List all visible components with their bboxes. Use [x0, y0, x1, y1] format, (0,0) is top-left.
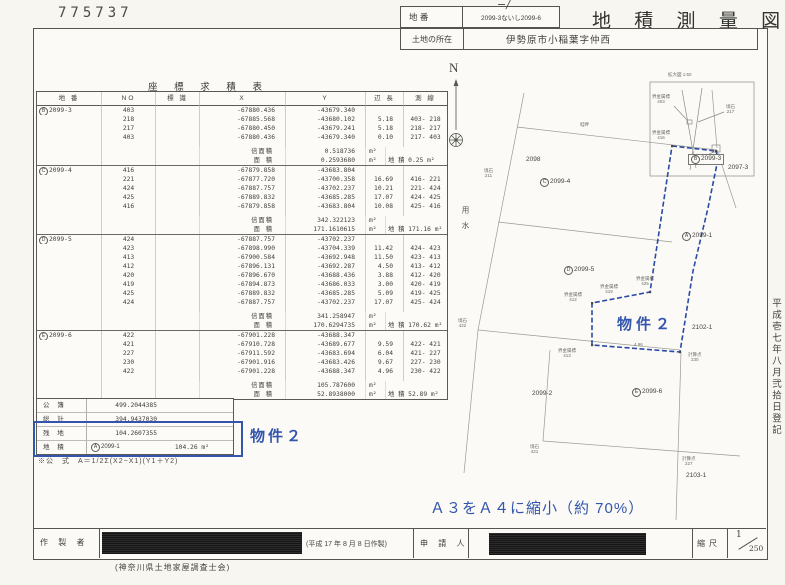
- summary-parcel: [181, 413, 233, 426]
- unit-label: m²: [365, 390, 385, 399]
- point-no-cell: 424: [101, 235, 155, 244]
- registered-area-cell: 地 積 170.62 m²: [385, 321, 447, 330]
- table-row: 230-67901.916-43683.4269.67227- 230: [37, 358, 447, 367]
- parcel-cell: [37, 271, 101, 280]
- area-value: 171.1610615: [285, 225, 365, 234]
- side-length-cell: [365, 235, 403, 244]
- double-area-row: 倍面積341.258947m²: [37, 312, 447, 321]
- survey-point-label-413: 界金属標413: [558, 348, 576, 358]
- x-coordinate-cell: -67889.832: [199, 289, 285, 298]
- registered-area-cell: 地 積 52.89 m²: [385, 390, 447, 399]
- parcel-label-2102-1: 2102-1: [692, 324, 712, 331]
- x-coordinate-cell: -67901.916: [199, 358, 285, 367]
- double-area-row: 倍面積0.518736m²: [37, 147, 447, 156]
- parcel-cell: [37, 358, 101, 367]
- marker-cell: [155, 331, 199, 340]
- survey-point-label-419: 界金属標419: [600, 284, 618, 294]
- y-coordinate-cell: -43692.287: [285, 262, 365, 271]
- area-value: 0.2593680: [285, 156, 365, 165]
- north-label: N: [449, 60, 458, 76]
- column-header: NO: [101, 92, 155, 106]
- x-coordinate-cell: -67879.858: [199, 202, 285, 211]
- x-coordinate-cell: -67896.131: [199, 262, 285, 271]
- side-length-cell: 5.09: [365, 289, 403, 298]
- y-coordinate-cell: -43685.285: [285, 289, 365, 298]
- applicant-label: 申 請 人: [420, 538, 468, 549]
- x-coordinate-cell: -67894.873: [199, 280, 285, 289]
- marker-cell: [155, 262, 199, 271]
- footer-divider: [33, 528, 766, 529]
- point-no-cell: 217: [101, 124, 155, 133]
- circled-letter: D: [564, 266, 573, 275]
- marker-cell: [155, 367, 199, 376]
- side-length-cell: 4.96: [365, 367, 403, 376]
- table-row: 424-67887.757-43702.23717.07425- 424: [37, 298, 447, 307]
- parcel-cell: B2099-3: [37, 106, 101, 115]
- side-length-cell: [365, 331, 403, 340]
- table-row: 217-67880.450-43679.2415.18218- 217: [37, 124, 447, 133]
- column-header: 辺 長: [365, 92, 403, 106]
- double-area-row: 倍面積105.787600m²: [37, 381, 447, 390]
- parcel-label-2103-1: 2103-1: [686, 472, 706, 479]
- point-no-cell: 416: [101, 166, 155, 175]
- blank-cell: [37, 156, 199, 165]
- summary-row: 総 計394.9437030: [37, 412, 233, 426]
- point-no-cell: 424: [101, 184, 155, 193]
- table-row: 423-67898.990-43704.33911.42424- 423: [37, 244, 447, 253]
- table-row: 227-67911.592-43683.6946.04421- 227: [37, 349, 447, 358]
- summary-value: 104.26 m²: [139, 441, 233, 454]
- document-number-stamp: 775737: [58, 5, 133, 21]
- blank-cell: [385, 381, 447, 390]
- circled-letter: B: [691, 155, 700, 164]
- table-header-row: 地 番NO標 識XY辺 長測 線: [37, 92, 447, 106]
- area-label: 面 積: [199, 321, 285, 330]
- marker-cell: [155, 235, 199, 244]
- table-row: B2099-3403-67880.436-43679.340: [37, 106, 447, 115]
- side-length-cell: 3.00: [365, 280, 403, 289]
- side-length-cell: 4.50: [365, 262, 403, 271]
- x-coordinate-cell: -67885.568: [199, 115, 285, 124]
- y-coordinate-cell: -43700.358: [285, 175, 365, 184]
- point-no-cell: 416: [101, 202, 155, 211]
- y-coordinate-cell: -43683.426: [285, 358, 365, 367]
- survey-point-label: 畦畔: [580, 122, 589, 127]
- survey-point-label-422: 境石422: [458, 318, 467, 328]
- registration-handwritten-note: 平成壱七年八月弐拾日登記: [768, 298, 782, 473]
- area-value: 52.8938000: [285, 390, 365, 399]
- point-no-cell: 423: [101, 244, 155, 253]
- y-coordinate-cell: -43688.347: [285, 331, 365, 340]
- table-row: 218-67885.568-43680.1025.18403- 218: [37, 115, 447, 124]
- summary-value: 104.2607355: [87, 427, 181, 440]
- blank-cell: [37, 216, 199, 225]
- parcel-cell: [37, 349, 101, 358]
- parcel-cell: [37, 193, 101, 202]
- land-location-row: 土地の所在 伊勢原市小稲葉字仲西: [400, 28, 758, 50]
- table-row: C2099-4416-67879.858-43683.804: [37, 165, 447, 175]
- footer-divider: [727, 528, 728, 558]
- survey-point-label-412: 界金属標412: [564, 292, 582, 302]
- point-no-cell: 422: [101, 331, 155, 340]
- table-row: 424-67887.757-43702.23710.21221- 424: [37, 184, 447, 193]
- unit-label: m²: [365, 312, 385, 321]
- blank-cell: [37, 321, 199, 330]
- point-no-cell: 421: [101, 340, 155, 349]
- x-coordinate-cell: -67880.450: [199, 124, 285, 133]
- y-coordinate-cell: -43679.340: [285, 133, 365, 142]
- circled-letter: B: [39, 107, 48, 115]
- point-no-cell: 413: [101, 253, 155, 262]
- marker-cell: [155, 193, 199, 202]
- blank-cell: [37, 312, 199, 321]
- unit-label: m²: [365, 147, 385, 156]
- y-coordinate-cell: -43683.804: [285, 166, 365, 175]
- waterway-label: 用水: [460, 206, 471, 237]
- point-no-cell: 422: [101, 367, 155, 376]
- side-length-cell: 5.18: [365, 115, 403, 124]
- parcel-label-2099-3: B2099-3: [688, 154, 724, 165]
- point-no-cell: 227: [101, 349, 155, 358]
- blank-cell: [385, 312, 447, 321]
- side-length-cell: 10.21: [365, 184, 403, 193]
- footer-divider: [468, 528, 469, 558]
- parcel-label-2098: 2098: [526, 156, 540, 163]
- y-coordinate-cell: -43686.033: [285, 280, 365, 289]
- area-value: 170.6294735: [285, 321, 365, 330]
- footer-divider: [99, 528, 100, 558]
- y-coordinate-cell: -43683.804: [285, 202, 365, 211]
- parcel-cell: [37, 202, 101, 211]
- property2-map-annotation: 物件２: [617, 313, 674, 334]
- area-label: 面 積: [199, 225, 285, 234]
- y-coordinate-cell: -43683.694: [285, 349, 365, 358]
- double-area-label: 倍面積: [199, 147, 285, 156]
- summary-parcel: [181, 427, 233, 440]
- blank-cell: [37, 147, 199, 156]
- creator-redaction-bar: [102, 532, 302, 554]
- marker-cell: [155, 349, 199, 358]
- column-header: Y: [285, 92, 365, 106]
- side-length-cell: 16.69: [365, 175, 403, 184]
- parcel-cell: [37, 253, 101, 262]
- table-row: 403-67880.436-43679.3400.10217- 403: [37, 133, 447, 142]
- x-coordinate-cell: -67901.228: [199, 331, 285, 340]
- survey-point-label: 4.96: [634, 342, 643, 347]
- parcel-cell: [37, 133, 101, 142]
- scale-fraction: 1 250: [730, 528, 767, 558]
- side-length-cell: 3.88: [365, 271, 403, 280]
- footer-divider: [692, 528, 693, 558]
- summary-label: 残 地: [37, 427, 87, 440]
- table-row: 422-67901.228-43688.3474.96230- 422: [37, 367, 447, 376]
- column-header: 標 識: [155, 92, 199, 106]
- unit-label: m²: [365, 321, 385, 330]
- parcel-cell: C2099-4: [37, 166, 101, 175]
- parcel-cell: [37, 115, 101, 124]
- column-header: X: [199, 92, 285, 106]
- north-arrow-icon: [450, 79, 463, 147]
- x-coordinate-cell: -67896.670: [199, 271, 285, 280]
- side-length-cell: 6.04: [365, 349, 403, 358]
- side-length-cell: 9.59: [365, 340, 403, 349]
- reduction-note: Ａ３をＡ４に縮小（約 70%）: [430, 497, 644, 518]
- survey-map: N 用水 2098C2099-4B2099-32097-3D2099-5A209…: [440, 58, 772, 528]
- unit-label: m²: [365, 381, 385, 390]
- double-area-value: 0.518736: [285, 147, 365, 156]
- parcel-cell: E2099-6: [37, 331, 101, 340]
- applicant-redaction-bar: [489, 533, 646, 555]
- y-coordinate-cell: -43688.347: [285, 367, 365, 376]
- y-coordinate-cell: -43704.339: [285, 244, 365, 253]
- x-coordinate-cell: -67880.436: [199, 133, 285, 142]
- parcel-cell: [37, 298, 101, 307]
- y-coordinate-cell: -43680.102: [285, 115, 365, 124]
- parcel-cell: [37, 289, 101, 298]
- marker-cell: [155, 271, 199, 280]
- side-length-cell: 5.18: [365, 124, 403, 133]
- table-row: 425-67889.832-43685.2855.09419- 425: [37, 289, 447, 298]
- table-row: 412-67896.131-43692.2874.50413- 412: [37, 262, 447, 271]
- y-coordinate-cell: -43688.436: [285, 271, 365, 280]
- summary-chiseki-row: 地 積A2099-1104.26 m²: [37, 440, 233, 454]
- area-row: 面 積170.6294735m²地 積 170.62 m²: [37, 321, 447, 330]
- y-coordinate-cell: -43702.237: [285, 298, 365, 307]
- point-no-cell: 425: [101, 289, 155, 298]
- survey-point-label-425: 界金属標425: [636, 276, 654, 286]
- scale-label: 縮尺: [697, 538, 721, 549]
- point-no-cell: 230: [101, 358, 155, 367]
- parcel-label-2099-2: 2099-2: [532, 390, 552, 397]
- land-location-label: 土地の所在: [401, 29, 464, 49]
- x-coordinate-cell: -67910.728: [199, 340, 285, 349]
- summary-value: 499.2044385: [87, 399, 181, 412]
- point-no-cell: 412: [101, 262, 155, 271]
- summary-value: 394.9437030: [87, 413, 181, 426]
- marker-cell: [155, 184, 199, 193]
- marker-cell: [155, 253, 199, 262]
- y-coordinate-cell: -43679.241: [285, 124, 365, 133]
- lot-number-label: 地 番: [401, 7, 463, 27]
- x-coordinate-cell: -67900.584: [199, 253, 285, 262]
- summary-parcel: A2099-1: [87, 441, 139, 454]
- scale-denominator: 250: [749, 544, 763, 553]
- point-no-cell: 221: [101, 175, 155, 184]
- side-length-cell: 11.42: [365, 244, 403, 253]
- side-length-cell: 11.50: [365, 253, 403, 262]
- y-coordinate-cell: -43679.340: [285, 106, 365, 115]
- table-row: 421-67910.728-43689.6779.59422- 421: [37, 340, 447, 349]
- blank-cell: [37, 225, 199, 234]
- marker-cell: [155, 202, 199, 211]
- area-row: 面 積171.1610615m²地 積 171.16 m²: [37, 225, 447, 234]
- side-length-cell: 9.67: [365, 358, 403, 367]
- y-coordinate-cell: -43702.237: [285, 184, 365, 193]
- marker-cell: [155, 175, 199, 184]
- point-no-cell: 403: [101, 133, 155, 142]
- marker-cell: [155, 298, 199, 307]
- area-row: 面 積0.2593680m²地 積 0.25 m²: [37, 156, 447, 165]
- marker-cell: [155, 133, 199, 142]
- survey-point-label: 拡大図 1:50: [668, 72, 692, 77]
- column-header: 地 番: [37, 92, 101, 106]
- parcel-cell: [37, 367, 101, 376]
- table-row: 221-67877.720-43700.35816.69416- 221: [37, 175, 447, 184]
- point-no-cell: 420: [101, 271, 155, 280]
- survey-point-label-211: 境石211: [484, 168, 493, 178]
- survey-point-label-227: 計算点227: [682, 456, 696, 466]
- marker-cell: [155, 166, 199, 175]
- marker-cell: [155, 244, 199, 253]
- table-row: D2099-5424-67887.757-43702.237: [37, 234, 447, 244]
- double-area-value: 341.258947: [285, 312, 365, 321]
- point-no-cell: 424: [101, 298, 155, 307]
- parcel-label-2099-4: C2099-4: [540, 178, 570, 187]
- side-length-cell: 0.10: [365, 133, 403, 142]
- side-length-cell: [365, 166, 403, 175]
- double-area-value: 342.322123: [285, 216, 365, 225]
- footer-divider: [413, 528, 414, 558]
- unit-label: m²: [365, 225, 385, 234]
- x-coordinate-cell: -67877.720: [199, 175, 285, 184]
- table-row: 419-67894.873-43686.0333.00420- 419: [37, 280, 447, 289]
- blank-cell: [385, 216, 447, 225]
- property2-annotation: 物件２: [250, 425, 304, 446]
- registered-area-cell: 地 積 0.25 m²: [385, 156, 447, 165]
- area-summary-table: 公 簿499.2044385総 計394.9437030残 地104.26073…: [36, 398, 234, 455]
- double-area-label: 倍面積: [199, 312, 285, 321]
- blank-cell: [37, 381, 199, 390]
- point-no-cell: 419: [101, 280, 155, 289]
- marker-cell: [155, 340, 199, 349]
- parcel-cell: [37, 184, 101, 193]
- side-length-cell: [365, 106, 403, 115]
- double-area-label: 倍面積: [199, 381, 285, 390]
- lot-handwritten-note: −/: [497, 0, 510, 11]
- x-coordinate-cell: -67887.757: [199, 235, 285, 244]
- x-coordinate-cell: -67880.436: [199, 106, 285, 115]
- parcel-cell: [37, 262, 101, 271]
- x-coordinate-cell: -67887.757: [199, 184, 285, 193]
- circled-letter: A: [682, 232, 691, 241]
- survey-point-label-230: 計算点230: [688, 352, 702, 362]
- parcel-cell: [37, 124, 101, 133]
- blank-cell: [385, 147, 447, 156]
- parcel-cell: D2099-5: [37, 235, 101, 244]
- parcel-cell: [37, 244, 101, 253]
- table-row: 420-67896.670-43688.4363.88412- 420: [37, 271, 447, 280]
- side-length-cell: 17.07: [365, 298, 403, 307]
- marker-cell: [155, 106, 199, 115]
- marker-cell: [155, 124, 199, 133]
- parcel-cell: [37, 175, 101, 184]
- point-no-cell: 403: [101, 106, 155, 115]
- side-length-cell: 10.08: [365, 202, 403, 211]
- x-coordinate-cell: -67889.832: [199, 193, 285, 202]
- lot-number-value: 2099-3ないし2099-6: [463, 7, 559, 27]
- x-coordinate-cell: -67898.990: [199, 244, 285, 253]
- x-coordinate-cell: -67901.228: [199, 367, 285, 376]
- scanned-cadastral-document: { "stamp": "775737", "header": { "lot_la…: [0, 0, 785, 585]
- x-coordinate-cell: -67887.757: [199, 298, 285, 307]
- summary-label: 地 積: [37, 441, 87, 454]
- circled-letter: E: [39, 332, 48, 340]
- association-note: (神奈川県土地家屋調査士会): [115, 562, 230, 573]
- double-area-label: 倍面積: [199, 216, 285, 225]
- summary-parcel: [181, 399, 233, 412]
- y-coordinate-cell: -43692.948: [285, 253, 365, 262]
- summary-row: 公 簿499.2044385: [37, 399, 233, 412]
- y-coordinate-cell: -43685.285: [285, 193, 365, 202]
- circled-letter: A: [91, 443, 100, 452]
- survey-point-label-403: 界金属標403: [652, 94, 670, 104]
- double-area-value: 105.787600: [285, 381, 365, 390]
- survey-point-label-421: 境石421: [530, 444, 539, 454]
- summary-row: 残 地104.2607355: [37, 426, 233, 440]
- land-location-value: 伊勢原市小稲葉字仲西: [464, 29, 757, 49]
- marker-cell: [155, 358, 199, 367]
- parcel-label-2099-1: A2099-1: [682, 232, 712, 241]
- side-length-cell: 17.07: [365, 193, 403, 202]
- coordinate-table: 地 番NO標 識XY辺 長測 線B2099-3403-67880.436-436…: [36, 91, 448, 400]
- scale-numerator: 1: [736, 530, 742, 540]
- table-row: 416-67879.858-43683.80410.08425- 416: [37, 202, 447, 211]
- circled-letter: E: [632, 388, 641, 397]
- point-no-cell: 425: [101, 193, 155, 202]
- marker-cell: [155, 115, 199, 124]
- parcel-label-2099-6: E2099-6: [632, 388, 662, 397]
- parcel-label-2097-3: 2097-3: [728, 164, 748, 171]
- x-coordinate-cell: -67879.858: [199, 166, 285, 175]
- area-formula-note: ※公 式 A＝1/2Σ(X2−X1)(Y1＋Y2): [38, 456, 178, 466]
- circled-letter: C: [39, 167, 48, 175]
- unit-label: m²: [365, 216, 385, 225]
- marker-cell: [155, 289, 199, 298]
- double-area-row: 倍面積342.322123m²: [37, 216, 447, 225]
- survey-point-label-416: 界金属標416: [652, 130, 670, 140]
- y-coordinate-cell: -43689.677: [285, 340, 365, 349]
- creation-date-note: (平成 17 年 8 月 8 日作製): [306, 539, 387, 549]
- parcel-cell: [37, 280, 101, 289]
- table-row: E2099-6422-67901.228-43688.347: [37, 330, 447, 340]
- circled-letter: D: [39, 236, 48, 244]
- circled-letter: C: [540, 178, 549, 187]
- survey-point-label-217: 境石217: [726, 104, 735, 114]
- marker-cell: [155, 280, 199, 289]
- registered-area-cell: 地 積 171.16 m²: [385, 225, 447, 234]
- table-row: 425-67889.832-43685.28517.07424- 425: [37, 193, 447, 202]
- parcel-cell: [37, 340, 101, 349]
- y-coordinate-cell: -43702.237: [285, 235, 365, 244]
- x-coordinate-cell: -67911.592: [199, 349, 285, 358]
- parcel-label-2099-5: D2099-5: [564, 266, 594, 275]
- summary-label: 公 簿: [37, 399, 87, 412]
- unit-label: m²: [365, 156, 385, 165]
- table-row: 413-67900.584-43692.94811.50423- 413: [37, 253, 447, 262]
- lot-number-row: 地 番 2099-3ないし2099-6: [400, 6, 560, 28]
- area-label: 面 積: [199, 156, 285, 165]
- summary-label: 総 計: [37, 413, 87, 426]
- point-no-cell: 218: [101, 115, 155, 124]
- creator-label: 作 製 者: [40, 537, 88, 548]
